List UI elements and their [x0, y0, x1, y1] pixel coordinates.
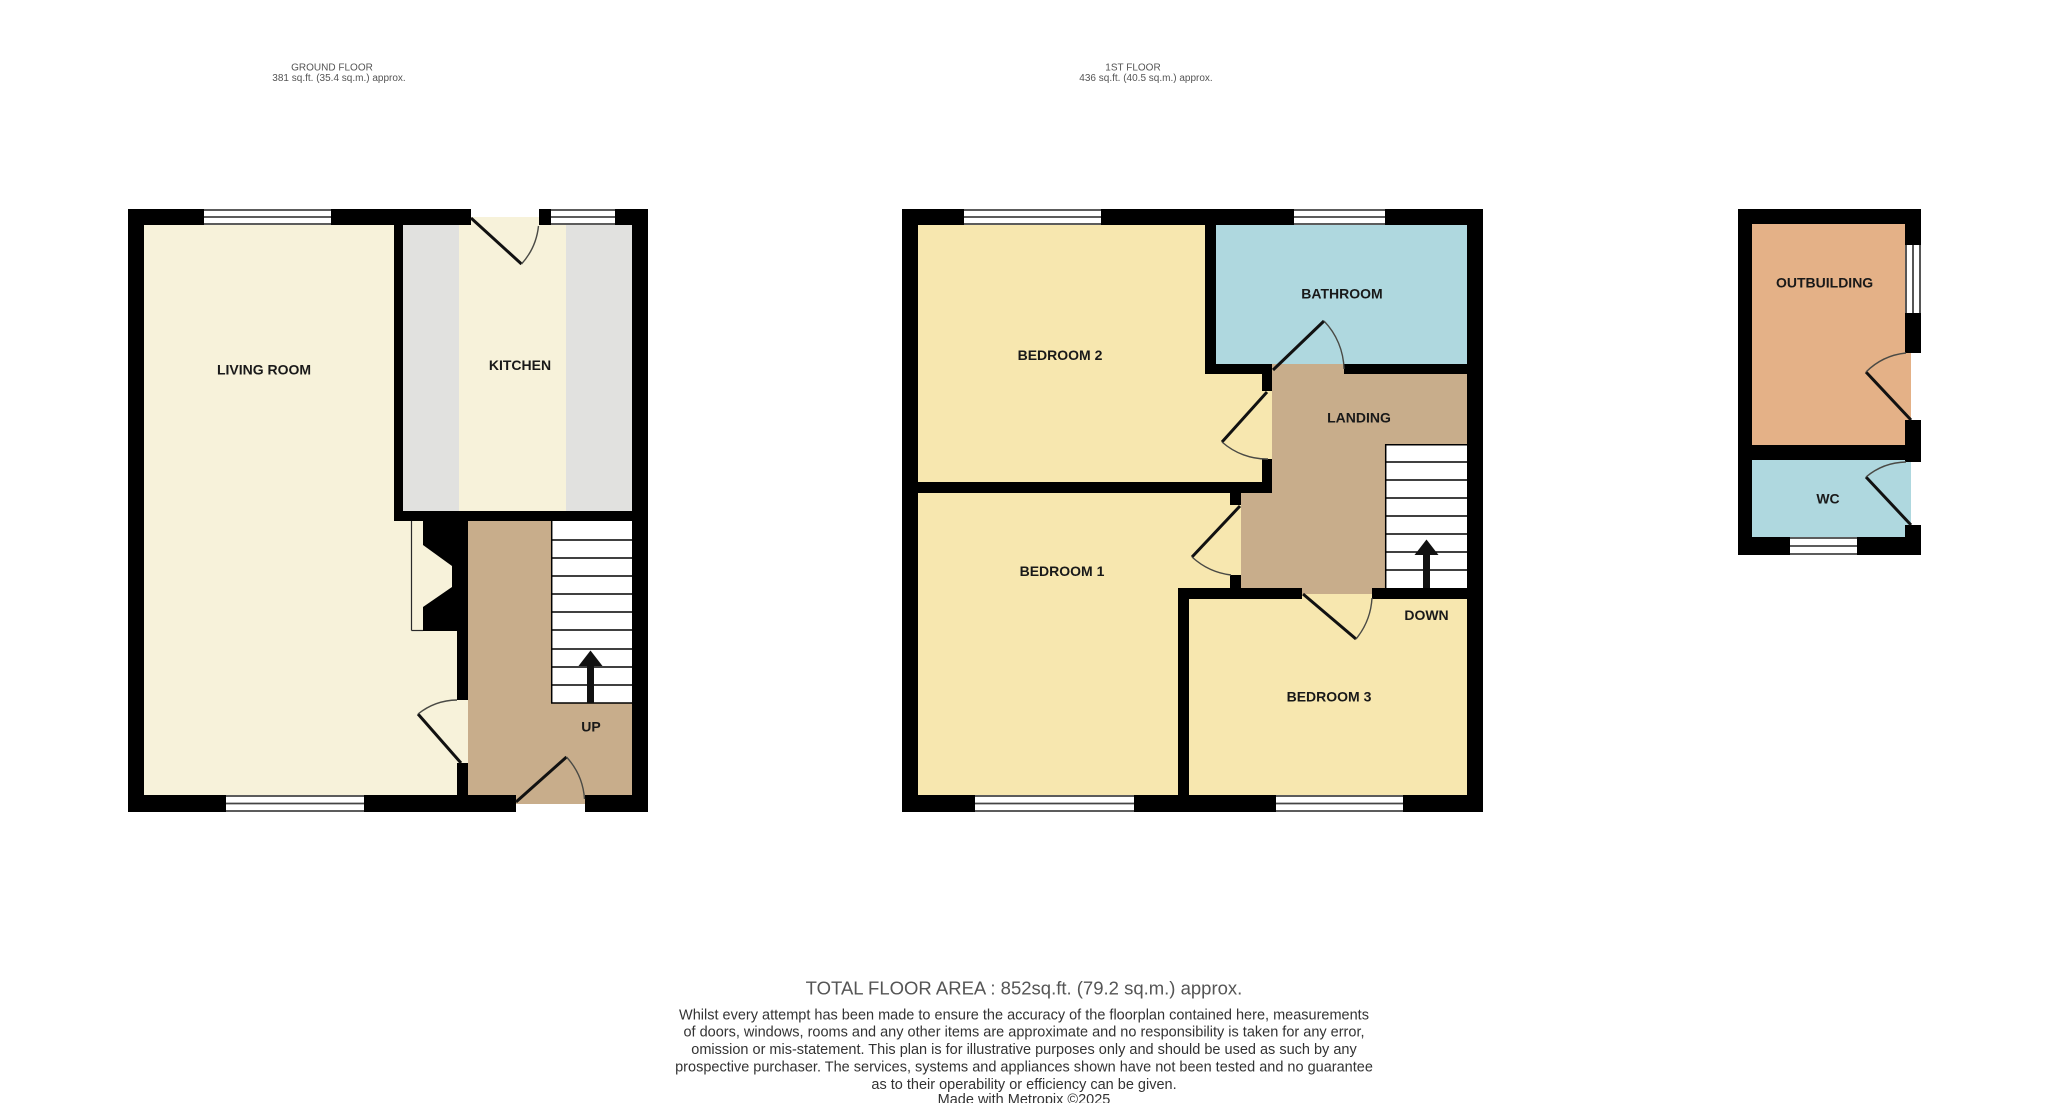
svg-text:436 sq.ft. (40.5 sq.m.) approx: 436 sq.ft. (40.5 sq.m.) approx. — [1079, 73, 1212, 84]
svg-text:omission or mis-statement. Thi: omission or mis-statement. This plan is … — [691, 1042, 1357, 1058]
svg-text:BEDROOM 2: BEDROOM 2 — [1018, 347, 1103, 363]
svg-text:1ST FLOOR: 1ST FLOOR — [1105, 62, 1160, 73]
svg-text:BEDROOM 1: BEDROOM 1 — [1020, 563, 1105, 579]
svg-text:GROUND FLOOR: GROUND FLOOR — [291, 62, 373, 73]
svg-text:TOTAL FLOOR AREA : 852sq.ft. (: TOTAL FLOOR AREA : 852sq.ft. (79.2 sq.m.… — [806, 978, 1243, 999]
svg-text:BATHROOM: BATHROOM — [1301, 286, 1382, 302]
svg-text:Whilst every attempt has been: Whilst every attempt has been made to en… — [679, 1007, 1369, 1023]
svg-text:BEDROOM 3: BEDROOM 3 — [1287, 689, 1372, 705]
svg-text:OUTBUILDING: OUTBUILDING — [1776, 275, 1873, 291]
svg-text:KITCHEN: KITCHEN — [489, 357, 551, 373]
svg-text:as to their operability or eff: as to their operability or efficiency ca… — [871, 1077, 1176, 1093]
svg-text:UP: UP — [581, 719, 600, 735]
svg-text:381 sq.ft. (35.4 sq.m.) approx: 381 sq.ft. (35.4 sq.m.) approx. — [272, 73, 405, 84]
svg-text:Made with Metropix ©2025: Made with Metropix ©2025 — [938, 1092, 1111, 1103]
svg-text:of doors, windows, rooms and a: of doors, windows, rooms and any other i… — [683, 1025, 1364, 1041]
svg-text:LIVING ROOM: LIVING ROOM — [217, 362, 311, 378]
svg-text:DOWN: DOWN — [1404, 607, 1448, 623]
svg-text:LANDING: LANDING — [1327, 409, 1391, 425]
svg-text:prospective purchaser. The ser: prospective purchaser. The services, sys… — [675, 1060, 1373, 1076]
svg-text:WC: WC — [1816, 491, 1839, 507]
